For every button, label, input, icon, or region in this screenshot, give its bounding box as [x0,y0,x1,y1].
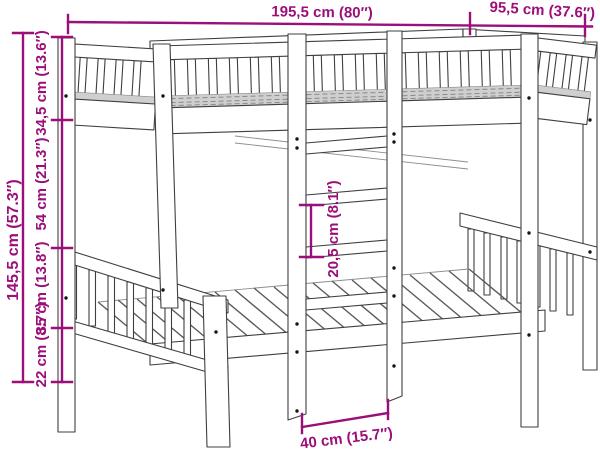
dim-label-depth: 95,5 cm (37.6″) [489,0,595,22]
dim-total-height: 145,5 cm (57.3″) [5,33,33,382]
dim-label-guardrail-height: 34,5 cm (13.6″) [33,30,50,136]
dim-label-rung-spacing: 20,5 cm (8.1″) [325,180,342,277]
upper-left-end-railing [70,44,159,130]
left-front-leg [203,296,230,447]
dim-label-ladder-width: 40 cm (15.7″) [299,424,393,452]
dim-top: 195,5 cm (80″) 95,5 cm (37.6″) [68,0,595,36]
dim-label-under-bed-clearance: 22 cm (8.7″) [33,303,50,388]
dim-label-total-height: 145,5 cm (57.3″) [5,179,22,301]
dim-ladder-width: 40 cm (15.7″) [299,400,393,452]
upper-front-railing [158,35,534,134]
bunk-bed-dimension-diagram: 195,5 cm (80″) 95,5 cm (37.6″) 145,5 cm … [0,0,600,452]
diagram-canvas: 195,5 cm (80″) 95,5 cm (37.6″) 145,5 cm … [0,0,600,452]
right-front-post [521,34,538,427]
dim-label-length: 195,5 cm (80″) [271,3,373,21]
dim-label-bunk-gap: 54 cm (21.3″) [33,137,50,230]
